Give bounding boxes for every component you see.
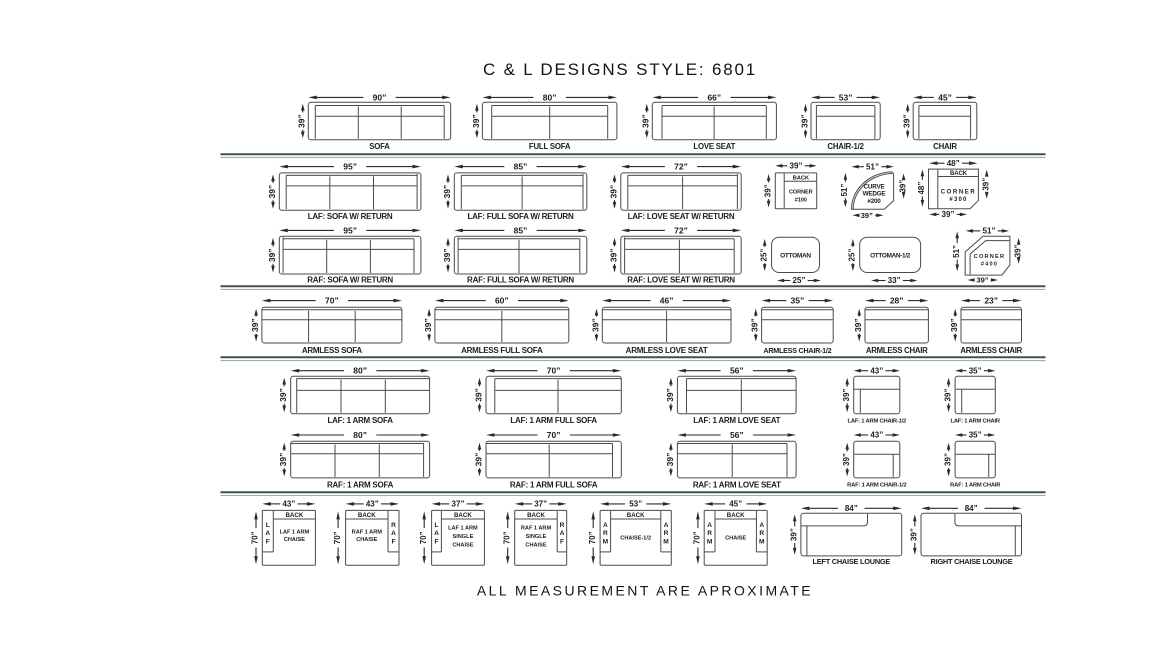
svg-text:70”: 70” [251,531,260,544]
svg-text:LAF: FULL SOFA W/ RETURN: LAF: FULL SOFA W/ RETURN [468,212,574,221]
svg-text:LAF: LOVE SEAT W/ RETURN: LAF: LOVE SEAT W/ RETURN [628,212,735,221]
svg-text:39”: 39” [790,162,803,171]
svg-text:CHAISE: CHAISE [452,542,473,548]
svg-text:66”: 66” [707,92,721,102]
svg-text:35”: 35” [969,431,982,440]
svg-text:CURVE: CURVE [864,183,885,190]
svg-text:LAF: 1 ARM LOVE SEAT: LAF: 1 ARM LOVE SEAT [693,416,780,425]
svg-text:95”: 95” [343,225,357,235]
svg-text:72”: 72” [674,162,688,172]
svg-text:R: R [664,530,669,537]
svg-text:70”: 70” [547,430,561,440]
svg-text:#300: #300 [949,197,967,203]
svg-text:CORNER: CORNER [941,190,977,196]
svg-text:39”: 39” [981,178,990,191]
svg-text:#200: #200 [867,198,881,205]
svg-text:39”: 39” [853,318,863,332]
svg-text:CORNER: CORNER [974,254,1005,260]
svg-text:51”: 51” [840,184,849,197]
svg-text:46”: 46” [660,296,674,306]
svg-text:ARMLESS LOVE SEAT: ARMLESS LOVE SEAT [626,346,708,355]
svg-text:39”: 39” [842,389,851,402]
svg-text:CHAIR: CHAIR [933,142,957,151]
svg-text:CHAIR-1/2: CHAIR-1/2 [827,142,864,151]
svg-text:39”: 39” [665,453,675,467]
svg-text:25”: 25” [793,276,806,285]
svg-text:R: R [560,522,565,529]
svg-text:LOVE SEAT: LOVE SEAT [693,142,735,151]
svg-text:RAF: 1 ARM CHAIR: RAF: 1 ARM CHAIR [950,483,1001,489]
svg-text:70”: 70” [547,366,561,376]
svg-text:CHAISE: CHAISE [284,537,305,543]
svg-text:84”: 84” [965,504,978,513]
svg-text:39”: 39” [267,248,277,262]
svg-text:WEDGE: WEDGE [863,191,886,198]
svg-text:RAF: 1 ARM FULL SOFA: RAF: 1 ARM FULL SOFA [510,480,598,489]
svg-text:43”: 43” [282,500,295,509]
svg-text:39”: 39” [665,388,675,402]
svg-text:39”: 39” [297,114,307,128]
svg-text:45”: 45” [938,92,952,102]
svg-text:37”: 37” [534,500,547,509]
svg-text:ARMLESS CHAIR: ARMLESS CHAIR [960,346,1022,355]
svg-text:39”: 39” [471,114,481,128]
svg-text:70”: 70” [333,531,342,544]
svg-text:39”: 39” [902,114,912,128]
svg-text:25”: 25” [848,249,857,262]
svg-text:#100: #100 [795,197,807,203]
svg-text:39”: 39” [442,248,452,262]
svg-text:39”: 39” [763,184,772,197]
svg-text:FULL SOFA: FULL SOFA [529,142,571,151]
svg-text:39”: 39” [278,388,288,402]
svg-text:39”: 39” [278,453,288,467]
svg-text:37”: 37” [452,500,465,509]
svg-text:LAF 1 ARM: LAF 1 ARM [280,529,310,535]
svg-text:#400: #400 [981,262,998,268]
svg-text:39”: 39” [789,528,798,541]
svg-text:72”: 72” [674,225,688,235]
svg-text:RIGHT CHAISE LOUNGE: RIGHT CHAISE LOUNGE [931,557,1013,566]
svg-text:25”: 25” [759,249,768,262]
svg-text:39”: 39” [943,453,952,466]
svg-text:39”: 39” [267,185,277,199]
svg-text:85”: 85” [514,225,528,235]
svg-text:48”: 48” [947,159,960,168]
svg-text:35”: 35” [969,366,982,375]
svg-text:39”: 39” [910,528,919,541]
svg-text:LAF: SOFA W/ RETURN: LAF: SOFA W/ RETURN [308,212,393,221]
svg-text:39”: 39” [473,453,483,467]
svg-text:RAF: LOVE SEAT W/ RETURN: RAF: LOVE SEAT W/ RETURN [627,275,735,284]
svg-text:ARMLESS CHAIR-1/2: ARMLESS CHAIR-1/2 [763,346,831,355]
svg-text:70”: 70” [419,531,428,544]
svg-text:60”: 60” [495,296,509,306]
svg-text:35”: 35” [791,296,805,306]
svg-text:39”: 39” [608,185,618,199]
svg-text:90”: 90” [373,92,387,102]
svg-text:BACK: BACK [793,176,810,182]
svg-text:RAF: 1 ARM LOVE SEAT: RAF: 1 ARM LOVE SEAT [693,480,781,489]
svg-text:F: F [266,538,270,545]
svg-text:LEFT CHAISE LOUNGE: LEFT CHAISE LOUNGE [812,557,890,566]
svg-text:39”: 39” [641,114,651,128]
svg-text:39”: 39” [943,389,952,402]
svg-text:R: R [707,530,712,537]
svg-text:A: A [434,530,439,537]
svg-text:M: M [663,538,669,545]
svg-text:F: F [391,538,395,545]
svg-text:95”: 95” [343,162,357,172]
svg-text:BACK: BACK [950,171,968,177]
svg-text:BACK: BACK [527,512,545,519]
svg-text:BACK: BACK [627,512,645,519]
svg-text:BACK: BACK [285,512,303,519]
svg-text:39”: 39” [590,318,600,332]
svg-text:39”: 39” [861,211,873,220]
svg-text:56”: 56” [730,430,744,440]
svg-text:LAF 1 ARM: LAF 1 ARM [448,526,478,532]
svg-text:39”: 39” [799,114,809,128]
svg-text:39”: 39” [976,276,988,285]
svg-text:RAF 1 ARM: RAF 1 ARM [521,526,552,532]
svg-text:RAF: 1 ARM SOFA: RAF: 1 ARM SOFA [327,480,394,489]
svg-text:70”: 70” [693,531,702,544]
svg-text:48”: 48” [917,182,926,195]
svg-text:C & L DESIGNS STYLE: 6801: C & L DESIGNS STYLE: 6801 [483,60,757,79]
svg-text:A: A [759,522,764,529]
svg-text:28”: 28” [890,296,904,306]
svg-text:LAF: 1 ARM CHAIR: LAF: 1 ARM CHAIR [950,418,1000,424]
svg-text:CHAISE: CHAISE [725,535,746,541]
svg-text:56”: 56” [730,366,744,376]
svg-text:51”: 51” [983,227,996,236]
svg-text:39”: 39” [898,180,907,193]
svg-text:BACK: BACK [727,512,745,519]
svg-text:80”: 80” [543,92,557,102]
svg-text:BACK: BACK [454,512,472,519]
svg-text:CORNER: CORNER [789,189,813,195]
svg-text:80”: 80” [353,430,367,440]
svg-text:39”: 39” [608,248,618,262]
svg-text:A: A [603,522,608,529]
svg-text:F: F [434,538,438,545]
svg-text:39”: 39” [473,388,483,402]
svg-text:80”: 80” [353,366,367,376]
svg-text:39”: 39” [423,318,433,332]
svg-text:LAF: 1 ARM FULL SOFA: LAF: 1 ARM FULL SOFA [510,416,597,425]
svg-text:LAF: 1 ARM CHAIR-1/2: LAF: 1 ARM CHAIR-1/2 [848,418,907,424]
svg-text:45”: 45” [729,500,742,509]
svg-text:LAF: 1 ARM SOFA: LAF: 1 ARM SOFA [327,416,393,425]
svg-text:43”: 43” [366,500,379,509]
svg-text:A: A [707,522,712,529]
svg-text:53”: 53” [629,500,642,509]
svg-text:CHAISE: CHAISE [356,537,377,543]
svg-text:51”: 51” [952,245,961,258]
svg-text:53”: 53” [839,92,853,102]
svg-text:84”: 84” [845,504,858,513]
svg-text:ARMLESS SOFA: ARMLESS SOFA [302,346,363,355]
svg-text:23”: 23” [984,296,998,306]
svg-text:RAF 1 ARM: RAF 1 ARM [352,529,383,535]
svg-text:RAF: FULL SOFA W/ RETURN: RAF: FULL SOFA W/ RETURN [467,275,574,284]
svg-text:A: A [265,530,270,537]
svg-text:43”: 43” [870,431,883,440]
svg-text:R: R [603,530,608,537]
svg-text:BACK: BACK [358,512,376,519]
svg-text:M: M [707,538,713,545]
svg-text:ARMLESS FULL SOFA: ARMLESS FULL SOFA [461,346,543,355]
svg-text:OTTOMAN-1/2: OTTOMAN-1/2 [870,252,911,259]
svg-text:SINGLE: SINGLE [526,534,547,540]
svg-text:39”: 39” [250,318,260,332]
svg-text:ALL MEASUREMENT ARE APROXIMATE: ALL MEASUREMENT ARE APROXIMATE [477,583,813,599]
svg-text:L: L [266,522,270,529]
svg-text:39”: 39” [942,210,955,219]
svg-text:85”: 85” [514,162,528,172]
svg-text:39”: 39” [842,453,851,466]
svg-text:70”: 70” [502,531,511,544]
svg-text:ARMLESS CHAIR: ARMLESS CHAIR [866,346,928,355]
svg-text:CHAISE: CHAISE [525,542,546,548]
svg-text:39”: 39” [750,318,760,332]
svg-text:SOFA: SOFA [369,142,390,151]
svg-text:A: A [560,530,565,537]
svg-text:70”: 70” [325,296,339,306]
svg-text:R: R [391,522,396,529]
svg-text:RAF: SOFA W/ RETURN: RAF: SOFA W/ RETURN [307,275,393,284]
svg-text:CHAISE-1/2: CHAISE-1/2 [620,535,651,541]
svg-text:M: M [603,538,609,545]
svg-text:70”: 70” [588,531,597,544]
svg-text:R: R [759,530,764,537]
svg-text:A: A [391,530,396,537]
svg-text:M: M [759,538,765,545]
svg-text:F: F [560,538,564,545]
svg-text:OTTOMAN: OTTOMAN [780,252,811,259]
svg-text:39”: 39” [1013,244,1022,257]
svg-text:A: A [664,522,669,529]
svg-text:39”: 39” [949,318,959,332]
svg-text:RAF: 1 ARM CHAIR-1/2: RAF: 1 ARM CHAIR-1/2 [847,483,906,489]
svg-text:43”: 43” [870,366,883,375]
svg-text:L: L [434,522,438,529]
svg-text:39”: 39” [442,185,452,199]
svg-text:33”: 33” [888,276,901,285]
svg-text:51”: 51” [866,162,879,171]
svg-text:SINGLE: SINGLE [452,534,473,540]
